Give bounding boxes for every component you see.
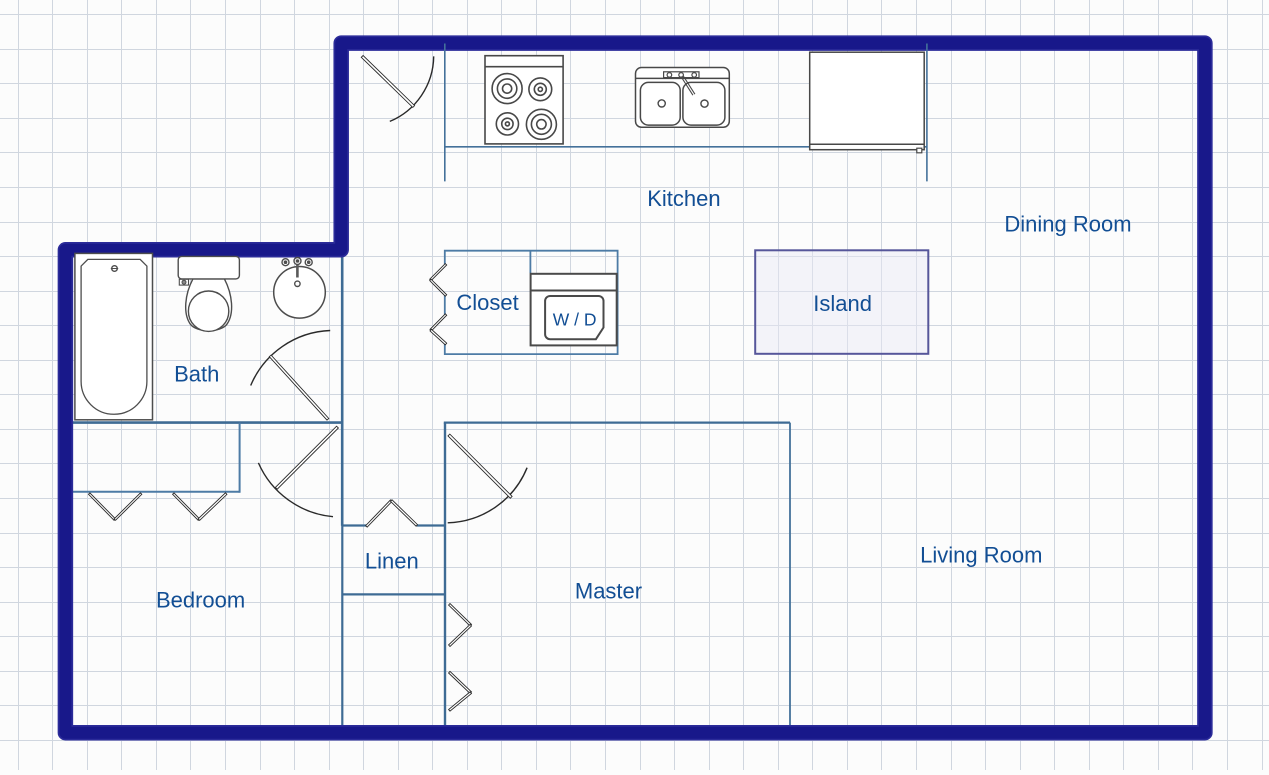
svg-text:Kitchen: Kitchen	[647, 186, 720, 211]
svg-text:Living Room: Living Room	[920, 543, 1042, 568]
svg-text:Bath: Bath	[174, 362, 219, 387]
svg-text:W / D: W / D	[553, 310, 597, 330]
svg-text:Dining Room: Dining Room	[1004, 212, 1131, 237]
svg-text:Island: Island	[813, 291, 872, 316]
svg-text:Master: Master	[575, 579, 642, 604]
svg-text:Bedroom: Bedroom	[156, 587, 245, 612]
svg-text:Linen: Linen	[365, 549, 419, 574]
svg-text:Closet: Closet	[456, 290, 518, 315]
